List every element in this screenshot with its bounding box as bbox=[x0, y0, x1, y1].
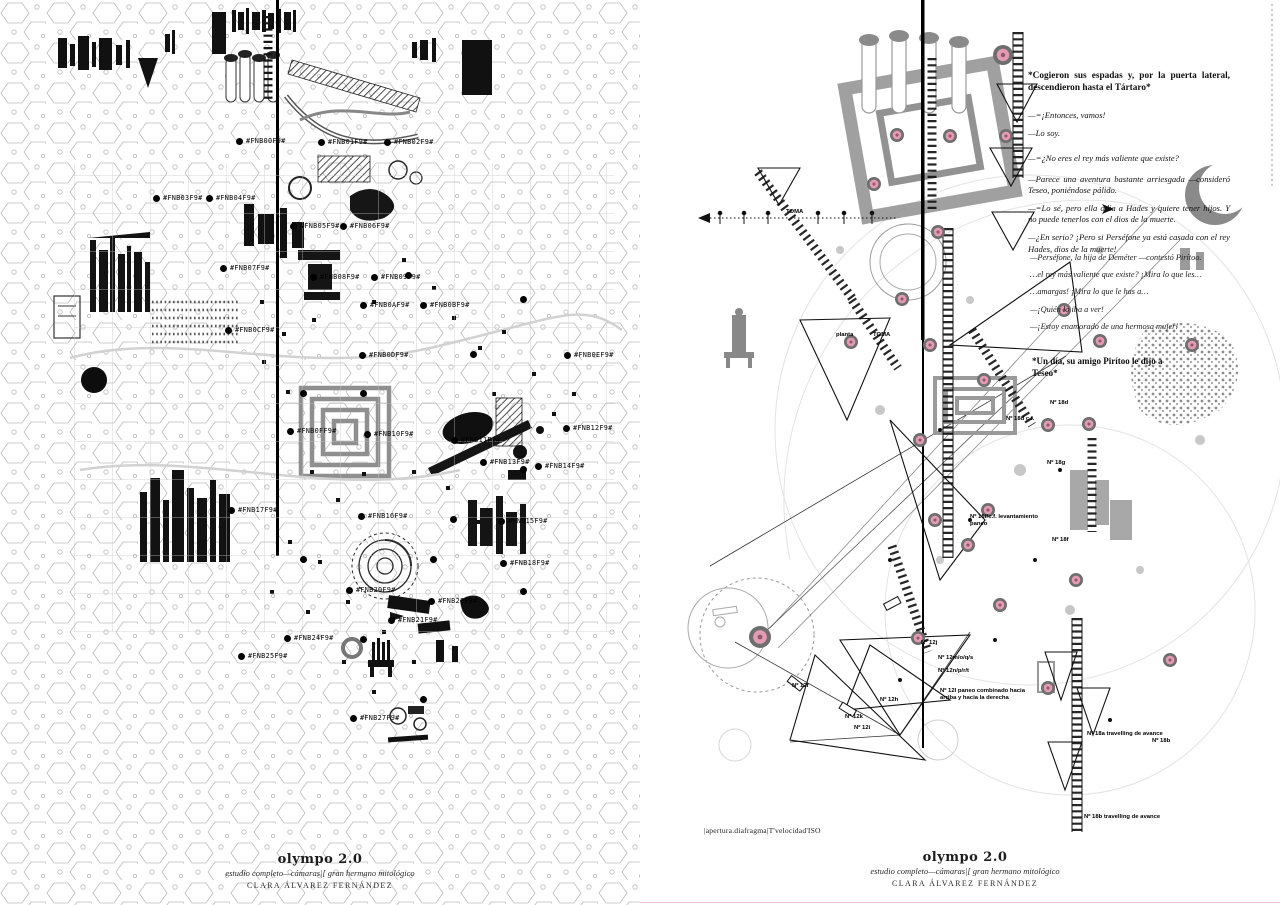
shot-label: Nº 12n/p/r/t bbox=[938, 668, 969, 675]
frame-code-label: #FNB0EF9# bbox=[574, 351, 614, 359]
frame-dot bbox=[420, 696, 427, 703]
frame-code-label: #FNB14F9# bbox=[545, 462, 585, 470]
author-name: CLARA ÁLVAREZ FERNÁNDEZ bbox=[210, 881, 430, 890]
frame-code-label: #FNB08F9# bbox=[320, 273, 360, 281]
frame-dot bbox=[236, 138, 243, 145]
frame-code-label: #FNB0BF9# bbox=[430, 301, 470, 309]
frame-dot bbox=[520, 588, 527, 595]
frame-code-label: #FNB09F9# bbox=[381, 273, 421, 281]
frame-dot bbox=[360, 636, 367, 643]
camera-marker-icon bbox=[993, 598, 1007, 612]
frame-code-label: #FNB00F9# bbox=[246, 137, 286, 145]
frame-dot bbox=[153, 195, 160, 202]
shot-label: Nº 18d c.f. bbox=[1006, 416, 1034, 423]
frame-code-label: #FNB05F9# bbox=[300, 222, 340, 230]
frame-dot bbox=[428, 598, 435, 605]
frame-code-label: #FNB20F9# bbox=[356, 586, 396, 594]
vertical-axis-line bbox=[276, 0, 279, 556]
frame-dot bbox=[451, 437, 458, 444]
camera-marker-icon bbox=[1163, 653, 1177, 667]
frame-code-label: #FNB0DF9# bbox=[369, 351, 409, 359]
frame-dot bbox=[358, 513, 365, 520]
pink-bottom-rule bbox=[640, 902, 1280, 903]
frame-dot bbox=[498, 518, 505, 525]
frame-dot bbox=[359, 352, 366, 359]
camera-marker-icon bbox=[999, 129, 1013, 143]
camera-marker-icon bbox=[1041, 418, 1055, 432]
title-block-left: olympo 2.0 estudio completo—cámaras|[ gr… bbox=[210, 852, 430, 890]
dialogue-line: —=Lo sé, pero ella odia a Hades y quiere… bbox=[1028, 203, 1230, 225]
frame-dot bbox=[290, 223, 297, 230]
spread-canvas: #FNB00F9##FNB01F9##FNB02F9##FNB03F9##FNB… bbox=[0, 0, 1280, 905]
project-subtitle: estudio completo—cámaras|[ gran hermano … bbox=[210, 868, 430, 878]
frame-dot bbox=[405, 272, 412, 279]
camera-marker-icon bbox=[928, 513, 942, 527]
shot-label: Nº 12l paneo combinado hacia arriba y ha… bbox=[940, 688, 1032, 702]
frame-dot bbox=[340, 223, 347, 230]
frame-dot bbox=[500, 560, 507, 567]
shot-label: Nº 12j bbox=[921, 640, 937, 647]
project-title: olympo 2.0 bbox=[210, 852, 430, 867]
frame-dot bbox=[220, 265, 227, 272]
frame-code-label: #FNB21F9# bbox=[398, 616, 438, 624]
project-title: olympo 2.0 bbox=[855, 850, 1075, 865]
frame-code-label: #FNB27F9# bbox=[360, 714, 400, 722]
big-ink-dot bbox=[81, 367, 107, 393]
stage-direction-quote-mid: *Un día, su amigo Pirítoo le dijo a Tese… bbox=[1032, 356, 1190, 379]
camera-marker-icon bbox=[890, 128, 904, 142]
frame-dot bbox=[206, 195, 213, 202]
frame-dot bbox=[360, 390, 367, 397]
frame-dot bbox=[480, 459, 487, 466]
frame-dot bbox=[450, 516, 457, 523]
frame-dot bbox=[535, 463, 542, 470]
frame-code-label: #FNB02F9# bbox=[394, 138, 434, 146]
shot-label: TOMA bbox=[786, 209, 803, 216]
frame-code-label: #FNB07F9# bbox=[230, 264, 270, 272]
frame-code-label: #FNB13F9# bbox=[490, 458, 530, 466]
camera-marker-icon bbox=[895, 292, 909, 306]
frame-code-label: #FNB15F9# bbox=[508, 517, 548, 525]
frame-code-label: #FNB04F9# bbox=[216, 194, 256, 202]
frame-dot bbox=[420, 302, 427, 309]
dialogue-fragment: —¡Estoy enamorado de una hermosa mujer! bbox=[1030, 321, 1236, 332]
camera-marker-icon bbox=[1041, 681, 1055, 695]
frame-code-label: #FNB23F9# bbox=[438, 597, 478, 605]
frame-dot bbox=[364, 431, 371, 438]
frame-dot bbox=[371, 274, 378, 281]
camera-marker-icon bbox=[993, 45, 1013, 65]
frame-dot bbox=[346, 587, 353, 594]
frame-dot bbox=[310, 274, 317, 281]
author-name: CLARA ÁLVAREZ FERNÁNDEZ bbox=[855, 879, 1075, 888]
shot-label: Nº 12i bbox=[854, 725, 870, 732]
frame-code-label: #FNB10F9# bbox=[374, 430, 414, 438]
shot-label: Nº 12k bbox=[845, 714, 863, 721]
frame-dot bbox=[520, 296, 527, 303]
dialogue-fragments: —Perséfone, la hija de Deméter —contestó… bbox=[1030, 252, 1236, 338]
title-block-right: olympo 2.0 estudio completo—cámaras|[ gr… bbox=[855, 850, 1075, 888]
camera-marker-icon bbox=[1082, 417, 1096, 431]
frame-code-label: #FNB11F9# bbox=[461, 436, 501, 444]
frame-dot bbox=[384, 139, 391, 146]
frame-code-label: #FNB0FF9# bbox=[297, 427, 337, 435]
frame-code-label: #FNB03F9# bbox=[163, 194, 203, 202]
dialogue-fragment: —Perséfone, la hija de Deméter —contestó… bbox=[1030, 252, 1236, 263]
frame-code-label: #FNB24F9# bbox=[294, 634, 334, 642]
frame-dot bbox=[284, 635, 291, 642]
frame-dot bbox=[225, 327, 232, 334]
vertical-axis-line-thin bbox=[922, 340, 924, 748]
camera-marker-icon bbox=[1185, 338, 1199, 352]
frame-dot bbox=[388, 617, 395, 624]
frame-dot bbox=[238, 653, 245, 660]
camera-marker-icon bbox=[943, 129, 957, 143]
shot-label: TOMA bbox=[873, 332, 890, 339]
shot-label: Nº 12f bbox=[792, 683, 809, 690]
frame-code-label: #FNB01F9# bbox=[328, 138, 368, 146]
project-subtitle: estudio completo—cámaras|[ gran hermano … bbox=[855, 866, 1075, 876]
frame-code-label: #FNB18F9# bbox=[510, 559, 550, 567]
camera-settings-note: |apertura.diafragma|T'velocidad'ISO bbox=[704, 826, 821, 835]
dialogue-fragment: —¡Quién lo iba a ver! bbox=[1030, 304, 1236, 315]
camera-marker-icon bbox=[931, 225, 945, 239]
frame-dot bbox=[360, 302, 367, 309]
camera-marker-icon bbox=[749, 626, 771, 648]
left-sheet: #FNB00F9##FNB01F9##FNB02F9##FNB03F9##FNB… bbox=[0, 0, 640, 905]
shot-label: Nº 12m/o/q/s bbox=[938, 655, 973, 662]
shot-label: Nº 18f bbox=[1052, 537, 1069, 544]
dialogue-line: —Lo soy. bbox=[1028, 128, 1230, 139]
hex-grid-background bbox=[0, 0, 640, 905]
frame-code-label: #FNB06F9# bbox=[350, 222, 390, 230]
dialogue-lines: —=¡Entonces, vamos!—Lo soy.—=¿No eres el… bbox=[1028, 110, 1230, 255]
left-collage-drawing bbox=[0, 0, 640, 905]
shot-label: Nº 18g bbox=[1047, 460, 1065, 467]
shot-label: Nº 18f/c.f. levantamiento paneo bbox=[970, 514, 1050, 528]
vertical-axis-line bbox=[921, 0, 925, 340]
frame-dot bbox=[350, 715, 357, 722]
frame-code-label: #FNB12F9# bbox=[573, 424, 613, 432]
shot-label: Nº 18b travelling de avance bbox=[1084, 814, 1160, 821]
stage-direction-quote: *Cogieron sus espadas y, por la puerta l… bbox=[1028, 70, 1230, 94]
frame-dot bbox=[300, 556, 307, 563]
shot-label: Nº 18b bbox=[1152, 738, 1170, 745]
frame-code-label: #FNB0AF9# bbox=[370, 301, 410, 309]
dialogue-fragment: …el rey más valiente que existe? ¡Mira l… bbox=[1030, 269, 1236, 280]
dialogue-line: —=¡Entonces, vamos! bbox=[1028, 110, 1230, 121]
frame-dot bbox=[318, 139, 325, 146]
frame-dot bbox=[563, 425, 570, 432]
shot-label: Nº 12h bbox=[880, 697, 898, 704]
dialogue-fragment: …amargas! ¡Mira lo que le has a… bbox=[1030, 286, 1236, 297]
frame-code-label: #FNB17F9# bbox=[238, 506, 278, 514]
camera-marker-icon bbox=[977, 373, 991, 387]
frame-dot bbox=[564, 352, 571, 359]
camera-marker-icon bbox=[961, 538, 975, 552]
frame-code-label: #FNB0CF9# bbox=[235, 326, 275, 334]
right-sheet: TOMATOMAplantaNº 18d c.f.Nº 18gNº 18f/c.… bbox=[640, 0, 1280, 905]
dialogue-column: *Cogieron sus espadas y, por la puerta l… bbox=[1028, 70, 1230, 262]
camera-marker-icon bbox=[913, 433, 927, 447]
frame-dot bbox=[470, 351, 477, 358]
frame-dot bbox=[520, 466, 527, 473]
shot-label: Nº 18a travelling de avance bbox=[1087, 731, 1163, 738]
shot-label: Nº 18d bbox=[1050, 400, 1068, 407]
camera-marker-icon bbox=[923, 338, 937, 352]
frame-code-label: #FNB16F9# bbox=[368, 512, 408, 520]
camera-marker-icon bbox=[867, 177, 881, 191]
dialogue-line: —=¿No eres el rey más valiente que exist… bbox=[1028, 153, 1230, 164]
frame-dot bbox=[430, 556, 437, 563]
frame-dot bbox=[287, 428, 294, 435]
shot-label: planta bbox=[836, 332, 853, 339]
dialogue-line: —Parece una aventura bastante arriesgada… bbox=[1028, 174, 1230, 196]
frame-dot bbox=[300, 390, 307, 397]
frame-code-label: #FNB25F9# bbox=[248, 652, 288, 660]
camera-marker-icon bbox=[1069, 573, 1083, 587]
frame-dot bbox=[228, 507, 235, 514]
